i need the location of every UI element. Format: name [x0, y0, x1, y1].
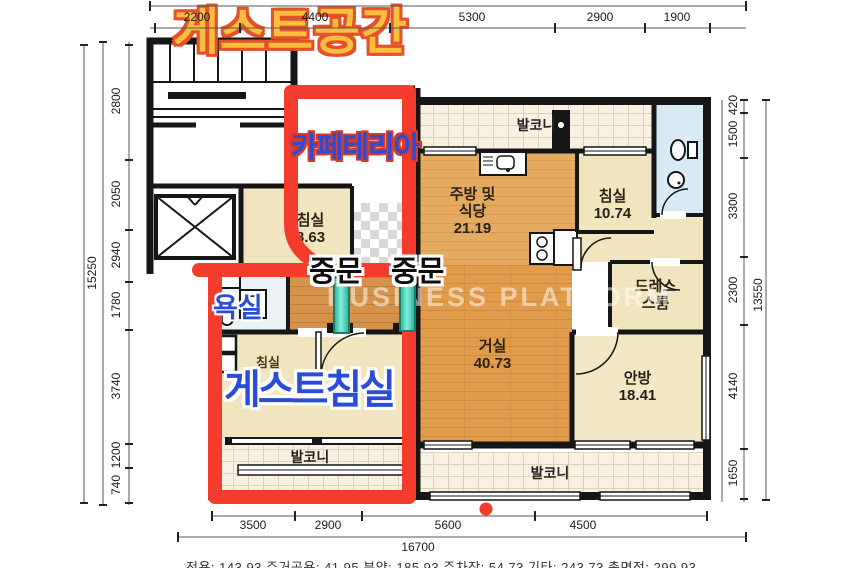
- dim-top-0: 2200: [172, 10, 222, 24]
- dimension-lines-layer: [0, 0, 852, 568]
- dim-top-1: 4400: [290, 10, 340, 24]
- dim-top-4: 1900: [652, 10, 702, 24]
- dim-right-3: 2300: [726, 270, 740, 310]
- dim-right-2: 3300: [726, 186, 740, 226]
- dim-right-1: 1500: [726, 114, 740, 154]
- area-summary-text: 전용: 143.93 주거공용: 41.95 분양: 185.93 주차장: 5…: [186, 557, 696, 568]
- dim-bottom-1: 2900: [303, 518, 353, 532]
- dim-bottom-total: 16700: [393, 540, 443, 554]
- dim-left-total: 15250: [85, 249, 99, 297]
- dim-bottom-0: 3500: [228, 518, 278, 532]
- dim-top-3: 2900: [575, 10, 625, 24]
- dim-left-1: 2050: [109, 174, 123, 214]
- dim-bottom-2: 5600: [423, 518, 473, 532]
- dim-left-0: 2800: [109, 81, 123, 121]
- dim-bottom-3: 4500: [558, 518, 608, 532]
- dim-left-3: 1780: [109, 285, 123, 325]
- dim-left-4: 3740: [109, 366, 123, 406]
- dim-left-2: 2940: [109, 235, 123, 275]
- floorplan-screenshot: 발코니 주방 및식당 21.19 침실10.74 드레스스룸 거실40.73 안…: [0, 0, 852, 568]
- dim-right-4: 4140: [726, 366, 740, 406]
- dim-right-5: 1650: [726, 453, 740, 493]
- dim-top-2: 5300: [447, 10, 497, 24]
- dim-left-6: 740: [109, 465, 123, 505]
- dim-right-total: 13550: [751, 271, 765, 319]
